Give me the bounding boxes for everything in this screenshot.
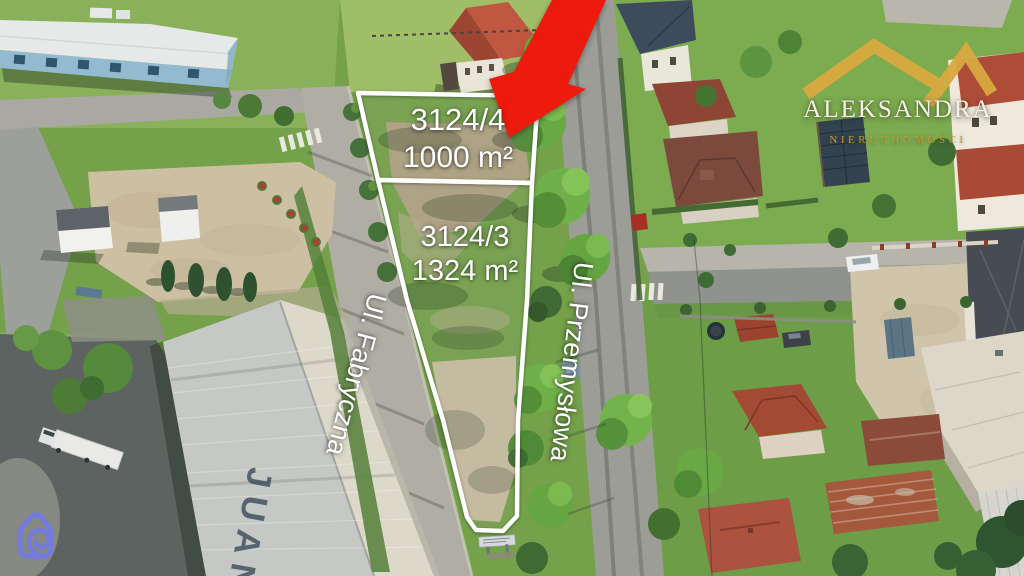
red-car bbox=[631, 213, 648, 231]
plot-upper-id-label: 3124/4 bbox=[385, 102, 531, 138]
plot-lower-id-label: 3124/3 bbox=[392, 221, 538, 254]
aerial-photo: 3124/4 1000 m² 3124/3 1324 m² Ul. Fabryc… bbox=[0, 0, 1024, 576]
plot-lower-area-label: 1324 m² bbox=[392, 255, 538, 288]
aerial-photo-base bbox=[0, 0, 1024, 576]
brand-tagline: NIERUCHOMOŚCI bbox=[798, 134, 998, 146]
brand-name: ALEKSANDRA bbox=[798, 96, 998, 124]
plot-upper-area-label: 1000 m² bbox=[385, 141, 531, 175]
